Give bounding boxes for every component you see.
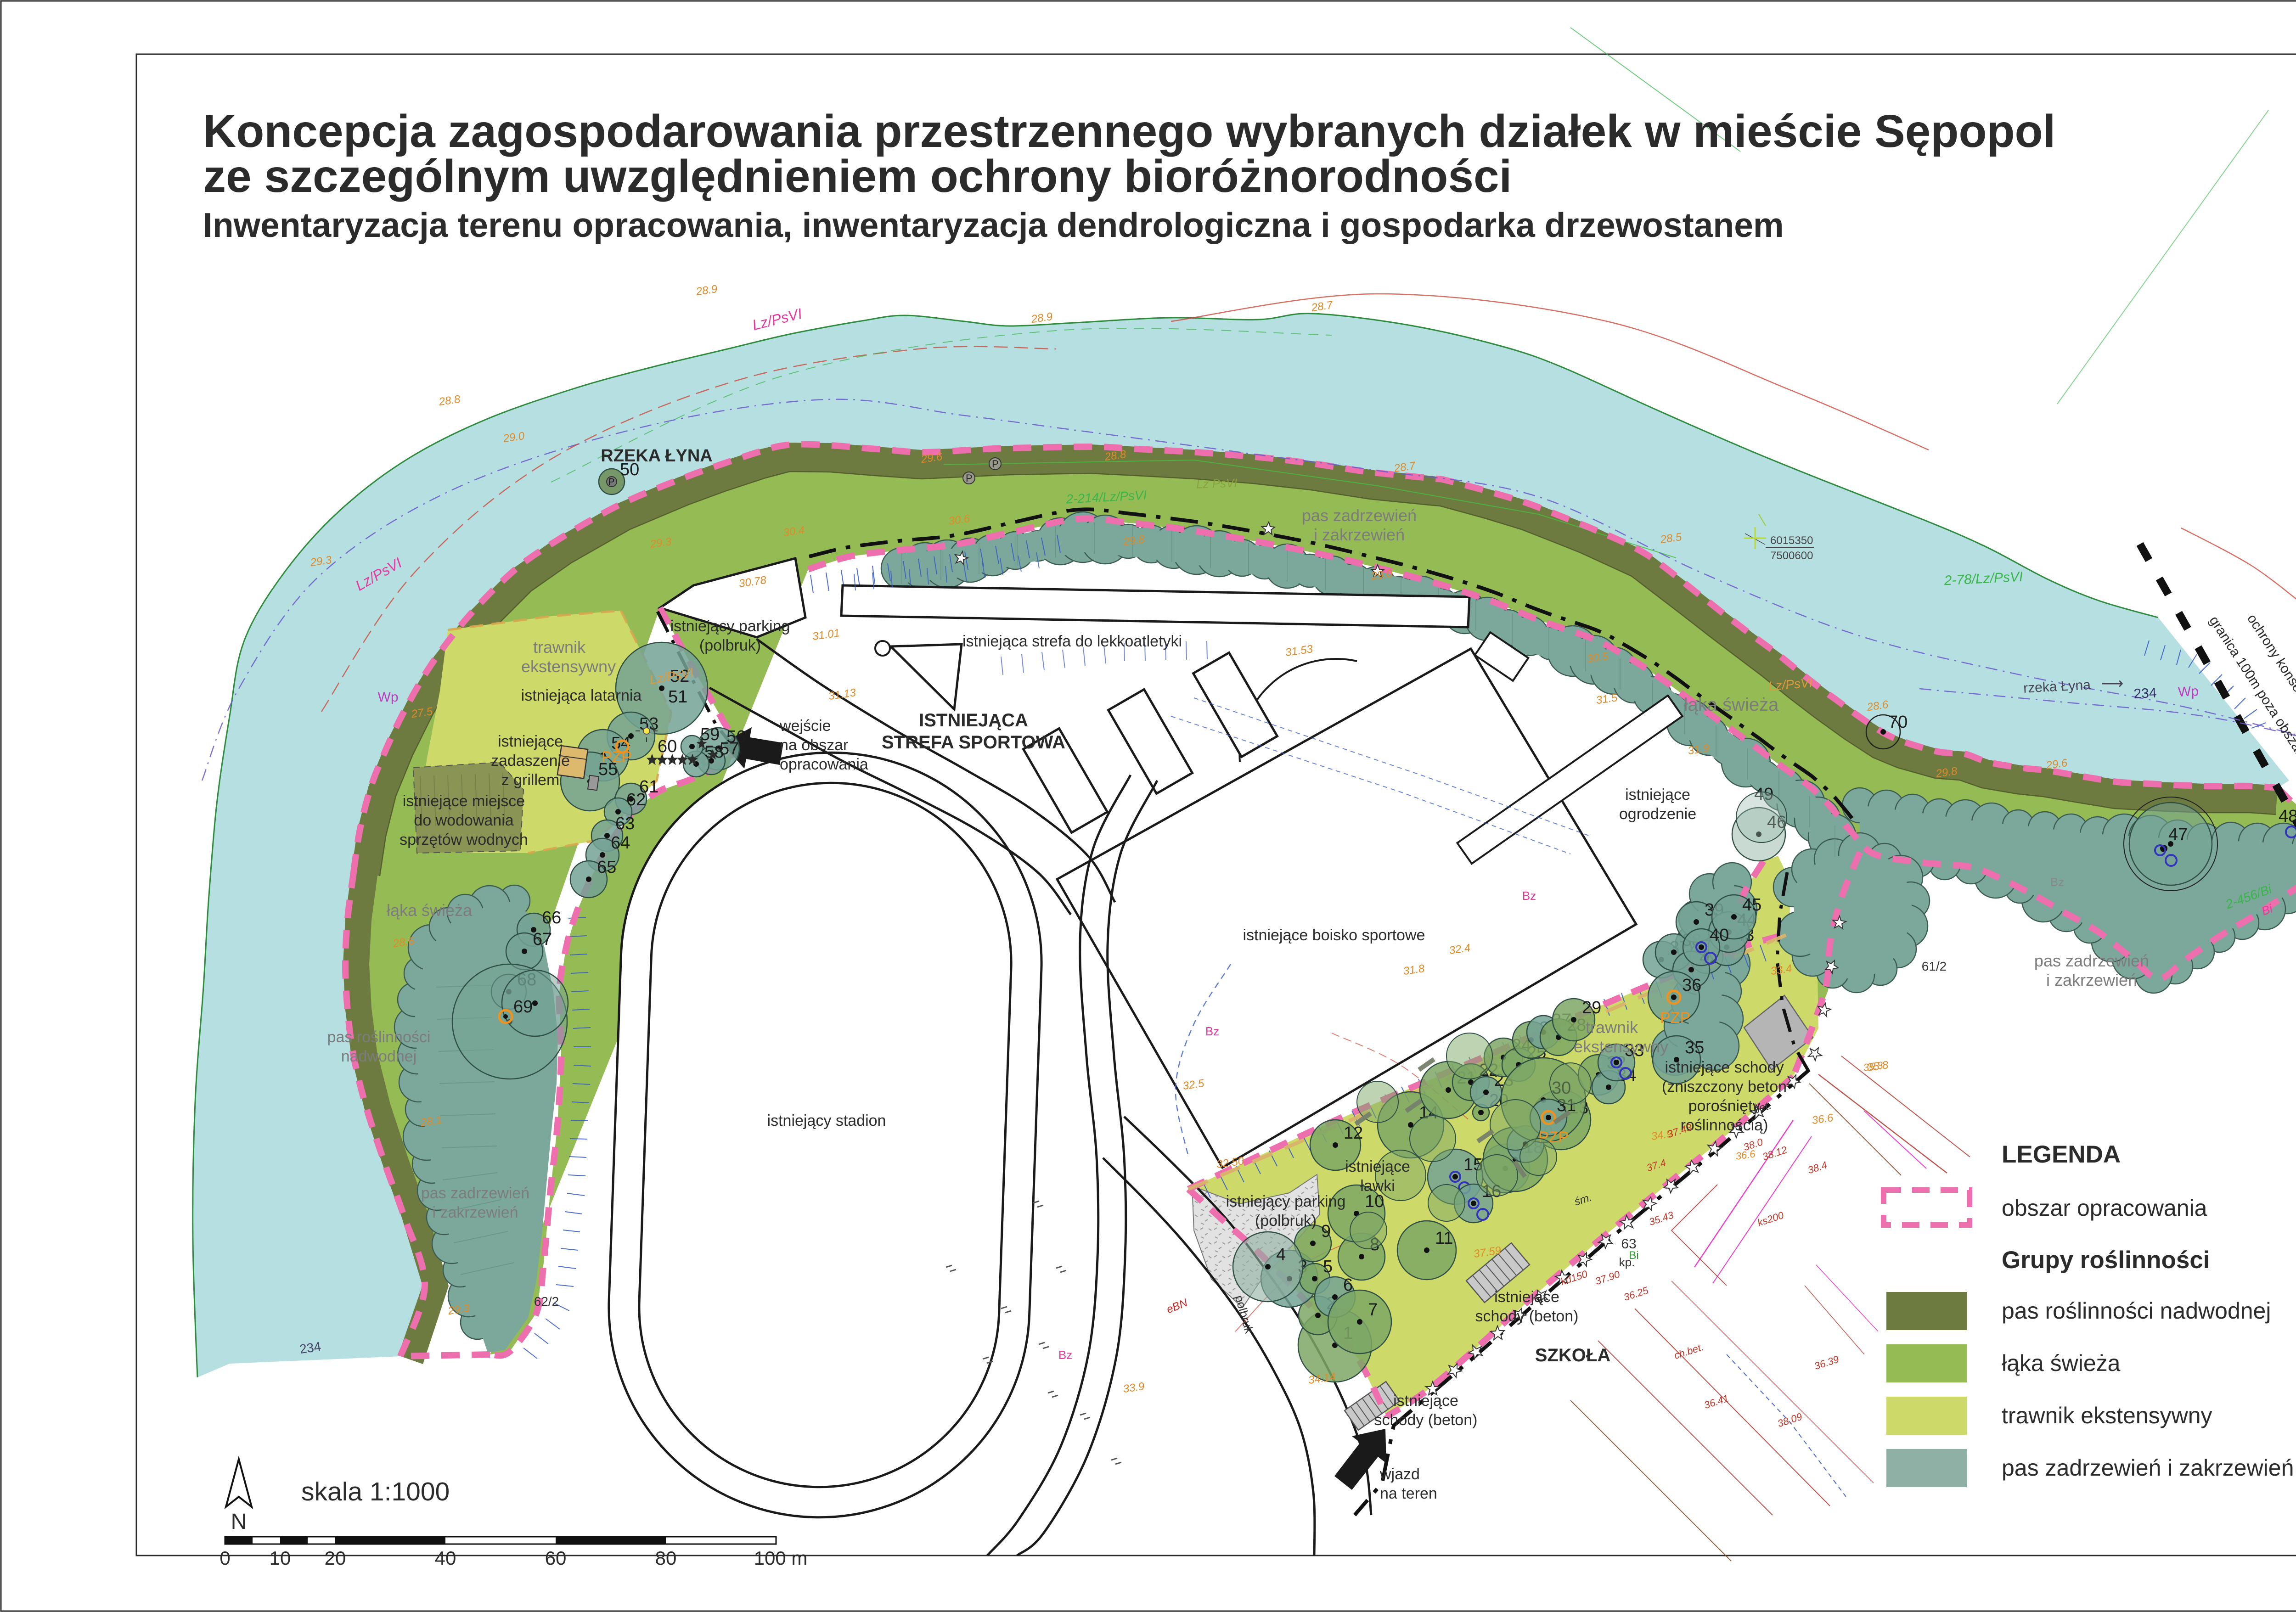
svg-text:ogrodzenie: ogrodzenie xyxy=(1619,805,1696,823)
svg-text:P: P xyxy=(992,458,999,470)
svg-text:58: 58 xyxy=(704,742,724,762)
svg-text:schody (beton): schody (beton) xyxy=(1475,1308,1579,1325)
svg-text:istniejące: istniejące xyxy=(1393,1392,1458,1410)
svg-text:istniejący parking: istniejący parking xyxy=(1226,1193,1346,1210)
svg-text:7: 7 xyxy=(1368,1300,1378,1320)
svg-text:roślinnością): roślinnością) xyxy=(1681,1117,1768,1134)
svg-text:234: 234 xyxy=(298,1339,322,1356)
svg-text:istniejący stadion: istniejący stadion xyxy=(767,1112,886,1129)
svg-text:Bi: Bi xyxy=(1629,1249,1638,1262)
svg-text:64: 64 xyxy=(611,833,630,853)
svg-text:pas roślinności: pas roślinności xyxy=(327,1028,431,1046)
svg-text:60: 60 xyxy=(545,1547,567,1569)
svg-text:65: 65 xyxy=(597,858,616,877)
svg-text:nadwodnej: nadwodnej xyxy=(341,1048,416,1065)
svg-text:ławki: ławki xyxy=(1360,1177,1395,1195)
svg-text:80: 80 xyxy=(655,1547,677,1569)
svg-text:pas roślinności nadwodnej: pas roślinności nadwodnej xyxy=(2002,1298,2271,1324)
svg-text:skala 1:1000: skala 1:1000 xyxy=(301,1477,450,1506)
svg-text:51: 51 xyxy=(668,687,687,707)
svg-text:10: 10 xyxy=(1365,1192,1384,1211)
svg-text:40: 40 xyxy=(1710,926,1729,945)
svg-text:P: P xyxy=(608,477,614,487)
svg-text:wjazd: wjazd xyxy=(1379,1466,1420,1483)
svg-text:29: 29 xyxy=(1582,998,1601,1017)
svg-text:11: 11 xyxy=(1435,1229,1453,1248)
svg-text:istniejące: istniejące xyxy=(1494,1288,1559,1306)
svg-text:48: 48 xyxy=(2279,807,2296,826)
svg-text:12: 12 xyxy=(1344,1123,1363,1143)
svg-text:47: 47 xyxy=(2168,825,2188,844)
svg-text:i zakrzewień: i zakrzewień xyxy=(2046,971,2137,989)
svg-text:istniejąca latarnia: istniejąca latarnia xyxy=(521,687,642,704)
svg-text:61/2: 61/2 xyxy=(1922,959,1947,973)
svg-text:do wodowania: do wodowania xyxy=(414,812,513,829)
svg-text:60: 60 xyxy=(658,737,677,756)
svg-text:porośnięty: porośnięty xyxy=(1688,1097,1761,1115)
svg-text:70: 70 xyxy=(1888,713,1908,732)
svg-text:istniejące schody: istniejące schody xyxy=(1665,1059,1784,1076)
svg-text:Wp: Wp xyxy=(2178,684,2199,700)
svg-text:trawnik: trawnik xyxy=(533,638,586,657)
svg-text:Bz: Bz xyxy=(1058,1348,1072,1362)
svg-text:zadaszenie: zadaszenie xyxy=(491,752,570,769)
svg-text:40: 40 xyxy=(435,1547,456,1569)
svg-text:(zniszczony beton: (zniszczony beton xyxy=(1662,1078,1787,1095)
svg-text:234: 234 xyxy=(2133,685,2157,702)
svg-text:istniejące: istniejące xyxy=(1625,786,1690,803)
svg-text:istniejąca strefa do lekkoatle: istniejąca strefa do lekkoatletyki xyxy=(962,633,1182,650)
svg-text:Inwentaryzacja terenu opracowa: Inwentaryzacja terenu opracowania, inwen… xyxy=(203,206,1784,244)
svg-text:Koncepcja zagospodarowania prz: Koncepcja zagospodarowania przestrzenneg… xyxy=(203,106,2055,157)
svg-text:Grupy roślinności: Grupy roślinności xyxy=(2002,1247,2210,1274)
svg-text:i zakrzewień: i zakrzewień xyxy=(1314,525,1405,544)
svg-text:62: 62 xyxy=(626,790,646,809)
svg-text:pas zadrzewień: pas zadrzewień xyxy=(421,1185,529,1202)
svg-text:łąka świeża: łąka świeża xyxy=(1684,695,1779,715)
svg-text:62/2: 62/2 xyxy=(534,1294,559,1309)
svg-text:0: 0 xyxy=(219,1547,230,1569)
svg-text:(polbruk): (polbruk) xyxy=(699,637,761,654)
svg-text:istniejący parking: istniejący parking xyxy=(670,618,790,635)
svg-text:schody (beton): schody (beton) xyxy=(1374,1411,1478,1429)
svg-text:35: 35 xyxy=(1685,1038,1704,1057)
svg-text:Lz PsVI: Lz PsVI xyxy=(1196,476,1238,491)
svg-text:istniejące boisko sportowe: istniejące boisko sportowe xyxy=(1243,927,1425,944)
svg-text:PZP: PZP xyxy=(602,748,632,766)
svg-text:łąka świeża: łąka świeża xyxy=(387,901,473,920)
svg-text:LEGENDA: LEGENDA xyxy=(2002,1141,2121,1168)
svg-text:i zakrzewień: i zakrzewień xyxy=(432,1204,518,1221)
svg-text:Bz: Bz xyxy=(1522,889,1536,903)
svg-text:Bz: Bz xyxy=(2050,875,2064,889)
svg-text:7500600: 7500600 xyxy=(1770,550,1813,562)
svg-text:PZP: PZP xyxy=(1660,1009,1690,1027)
svg-text:łąka świeża: łąka świeża xyxy=(2002,1350,2121,1376)
svg-text:z grillem: z grillem xyxy=(501,771,560,789)
svg-text:trawnik: trawnik xyxy=(1586,1018,1638,1037)
svg-text:Wp: Wp xyxy=(378,690,399,705)
svg-text:Bz: Bz xyxy=(1205,1024,1219,1038)
svg-text:trawnik ekstensywny: trawnik ekstensywny xyxy=(2002,1403,2212,1428)
svg-text:20: 20 xyxy=(325,1547,346,1569)
svg-text:⟶: ⟶ xyxy=(2101,675,2124,692)
svg-text:STREFA SPORTOWA: STREFA SPORTOWA xyxy=(882,732,1065,753)
svg-text:6015350: 6015350 xyxy=(1770,534,1813,547)
svg-text:pas zadrzewień i zakrzewień: pas zadrzewień i zakrzewień xyxy=(2002,1455,2294,1481)
svg-text:opracowania: opracowania xyxy=(780,756,868,773)
svg-text:obszar opracowania: obszar opracowania xyxy=(2002,1195,2207,1221)
svg-text:ze szczególnym uwzględnieniem: ze szczególnym uwzględnieniem ochrony bi… xyxy=(203,151,1512,202)
svg-text:ekstensywny: ekstensywny xyxy=(521,657,616,676)
svg-text:66: 66 xyxy=(542,908,561,927)
svg-text:69: 69 xyxy=(513,997,533,1017)
svg-text:SZKOŁA: SZKOŁA xyxy=(1535,1345,1610,1365)
svg-text:istniejące: istniejące xyxy=(498,733,563,750)
svg-text:sprzętów wodnych: sprzętów wodnych xyxy=(400,831,528,848)
svg-text:P: P xyxy=(966,472,973,484)
svg-text:67: 67 xyxy=(533,930,552,949)
svg-text:59: 59 xyxy=(700,725,720,744)
svg-text:pas zadrzewień: pas zadrzewień xyxy=(1302,506,1417,525)
svg-text:ekstensywny: ekstensywny xyxy=(1574,1037,1668,1056)
svg-text:10: 10 xyxy=(270,1547,291,1569)
svg-text:istniejące miejsce: istniejące miejsce xyxy=(403,792,525,810)
svg-text:100 m: 100 m xyxy=(754,1547,808,1569)
svg-text:63: 63 xyxy=(615,814,635,833)
svg-text:9: 9 xyxy=(1321,1222,1331,1241)
svg-text:na obszar: na obszar xyxy=(780,736,848,754)
svg-text:pas zadrzewień: pas zadrzewień xyxy=(2034,951,2149,970)
svg-text:(polbruk): (polbruk) xyxy=(1255,1212,1317,1230)
svg-text:4: 4 xyxy=(1276,1245,1286,1264)
svg-text:45: 45 xyxy=(1742,895,1761,915)
svg-text:istniejące: istniejące xyxy=(1345,1158,1410,1175)
svg-text:na teren: na teren xyxy=(1380,1485,1437,1502)
svg-text:N: N xyxy=(231,1510,247,1534)
svg-text:RZEKA ŁYNA: RZEKA ŁYNA xyxy=(601,446,712,466)
svg-text:wejście: wejście xyxy=(779,717,831,735)
svg-text:5: 5 xyxy=(1323,1257,1333,1276)
svg-text:36: 36 xyxy=(1682,976,1701,995)
svg-text:ISTNIEJĄCA: ISTNIEJĄCA xyxy=(919,710,1028,730)
